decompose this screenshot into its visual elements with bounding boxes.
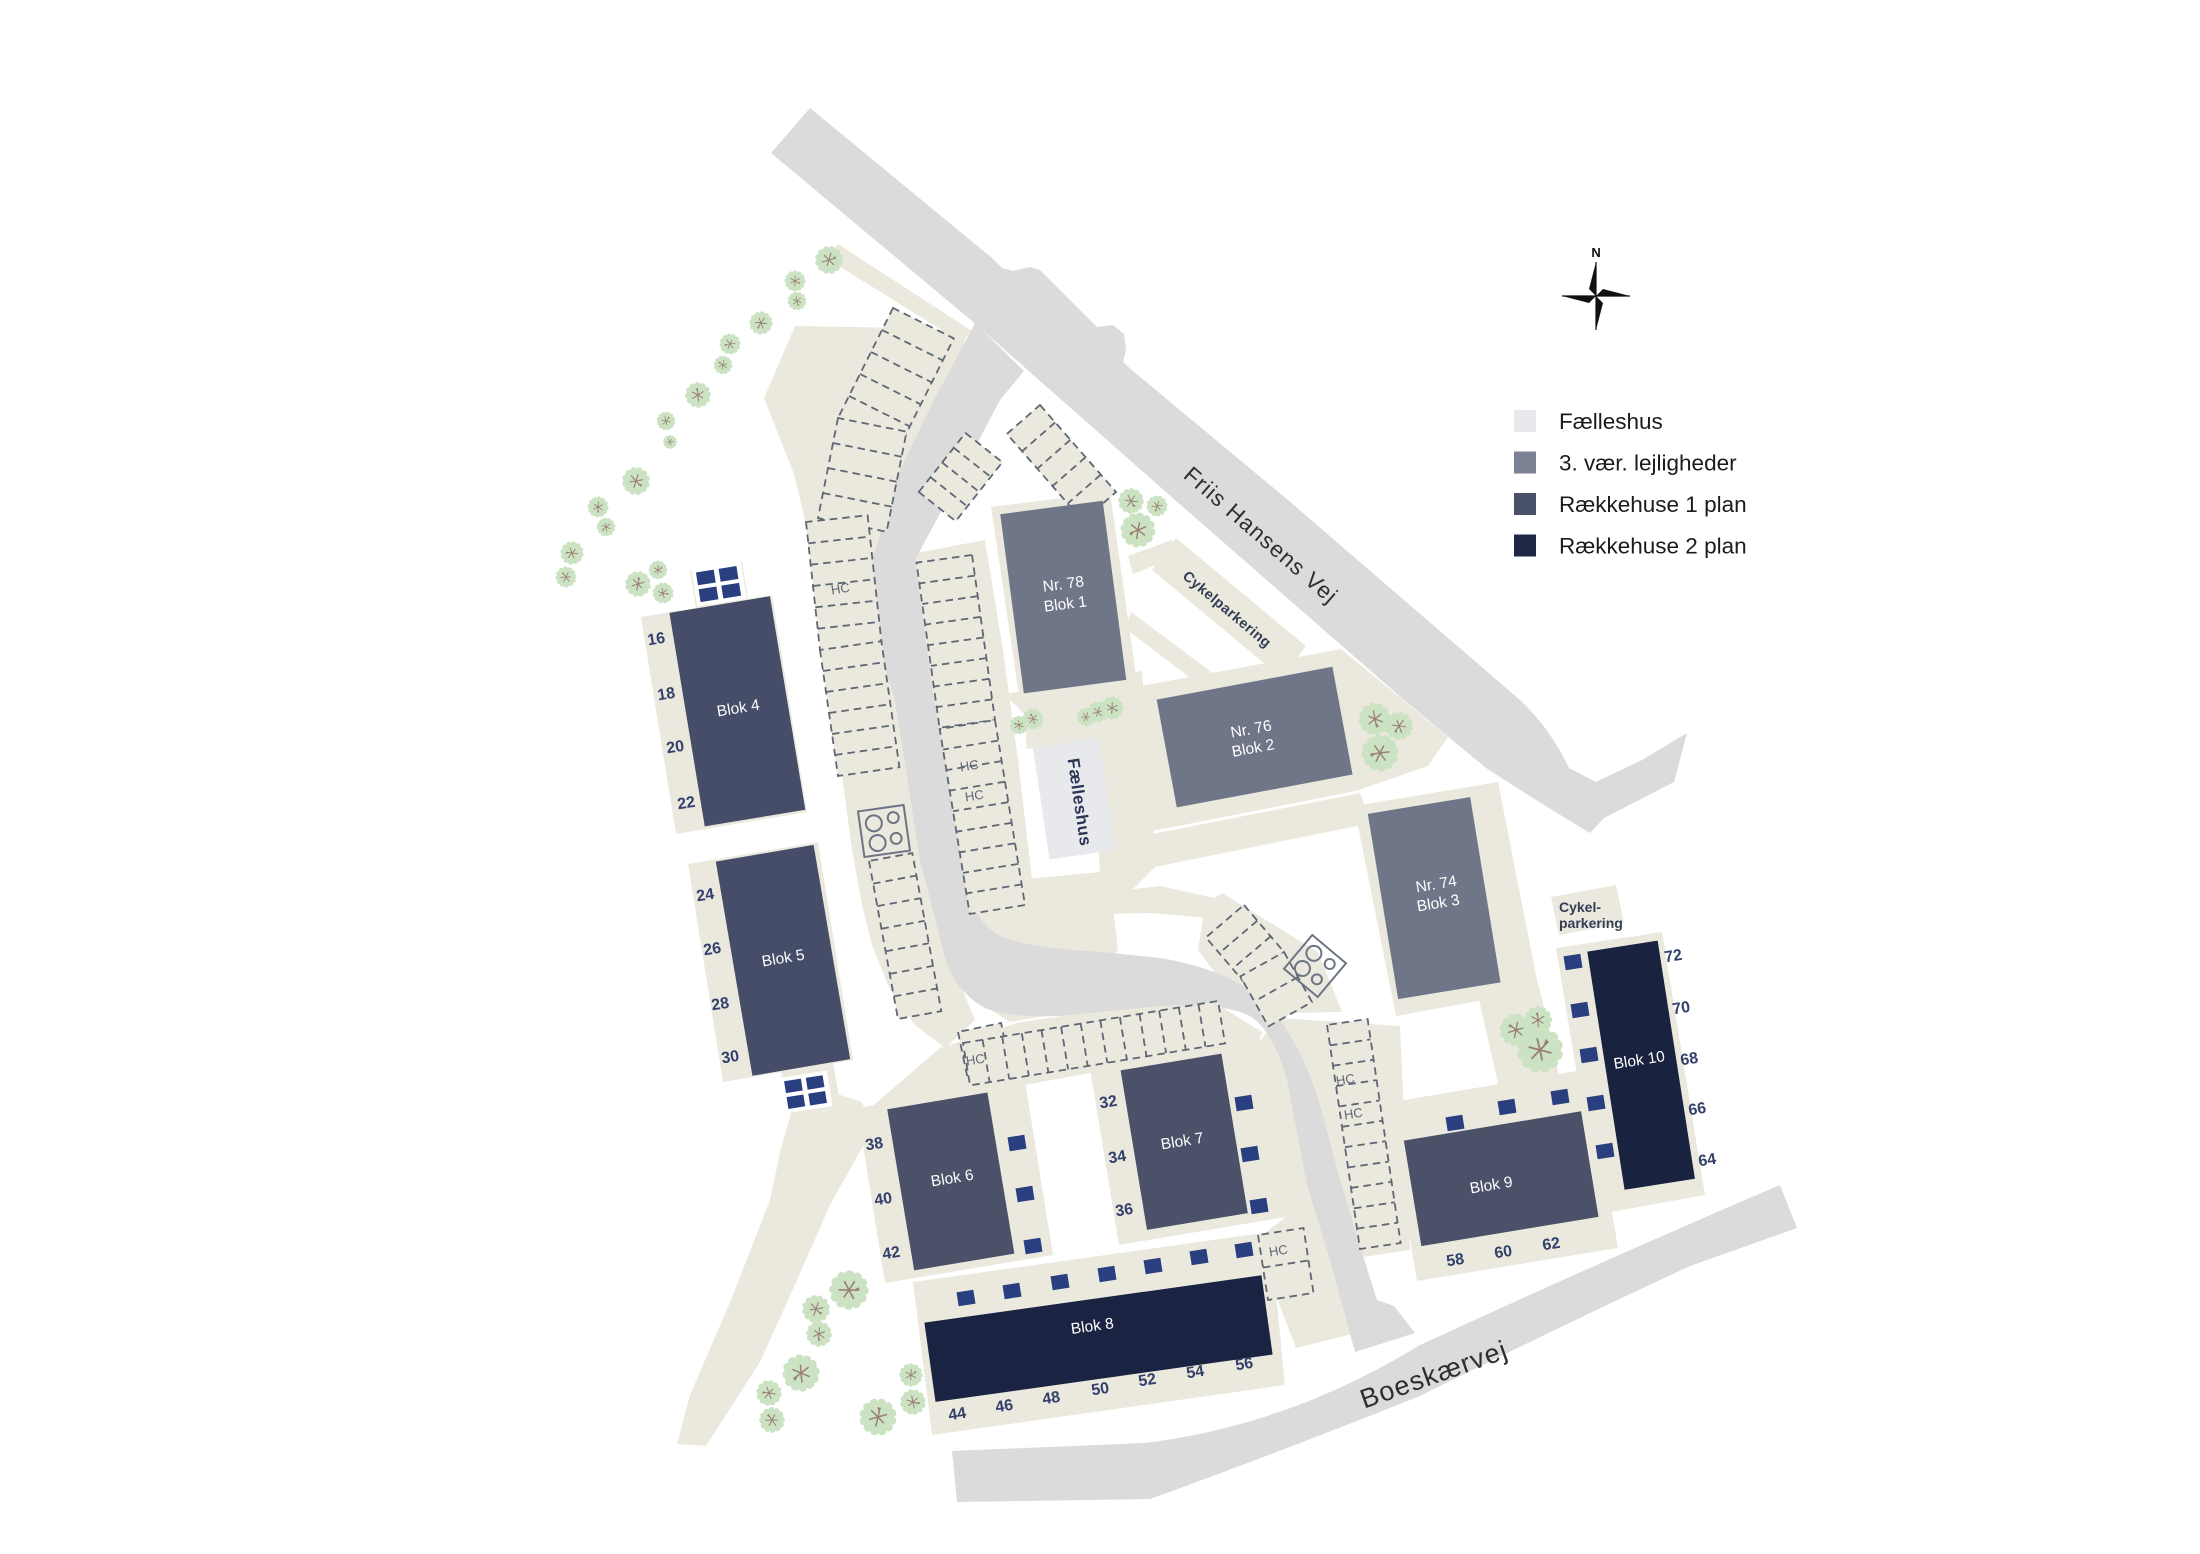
svg-text:68: 68	[1679, 1050, 1699, 1070]
svg-text:N: N	[1591, 245, 1600, 260]
svg-text:20: 20	[665, 738, 685, 758]
svg-text:18: 18	[656, 685, 676, 705]
svg-text:46: 46	[994, 1397, 1014, 1417]
svg-text:HC: HC	[965, 1051, 986, 1069]
svg-text:Fælleshus: Fælleshus	[1559, 409, 1663, 434]
svg-text:HC: HC	[830, 580, 851, 598]
svg-text:24: 24	[695, 886, 715, 906]
svg-text:70: 70	[1671, 999, 1691, 1019]
svg-text:parkering: parkering	[1559, 915, 1623, 931]
svg-text:26: 26	[702, 940, 722, 960]
svg-text:Rækkehuse 1 plan: Rækkehuse 1 plan	[1559, 492, 1747, 517]
svg-text:54: 54	[1185, 1363, 1205, 1383]
svg-text:32: 32	[1098, 1093, 1118, 1113]
svg-text:HC: HC	[1268, 1242, 1289, 1260]
svg-text:50: 50	[1090, 1380, 1110, 1400]
svg-text:58: 58	[1445, 1251, 1465, 1271]
svg-text:60: 60	[1493, 1243, 1513, 1263]
svg-text:44: 44	[947, 1405, 967, 1425]
svg-text:38: 38	[864, 1135, 884, 1155]
svg-text:Rækkehuse 2 plan: Rækkehuse 2 plan	[1559, 534, 1747, 559]
svg-text:HC: HC	[1343, 1105, 1364, 1123]
svg-text:40: 40	[873, 1190, 893, 1210]
svg-text:16: 16	[646, 630, 666, 650]
svg-text:HC: HC	[959, 757, 980, 775]
svg-text:62: 62	[1541, 1235, 1561, 1255]
svg-text:Cykel-: Cykel-	[1559, 899, 1601, 915]
svg-text:56: 56	[1234, 1355, 1254, 1375]
svg-text:28: 28	[710, 995, 730, 1015]
svg-text:22: 22	[676, 794, 696, 814]
svg-text:HC: HC	[964, 787, 985, 805]
svg-text:72: 72	[1663, 947, 1683, 967]
svg-text:34: 34	[1107, 1148, 1127, 1168]
svg-text:30: 30	[720, 1048, 740, 1068]
svg-text:52: 52	[1137, 1371, 1157, 1391]
svg-text:48: 48	[1041, 1389, 1061, 1409]
svg-text:64: 64	[1697, 1151, 1717, 1171]
svg-text:HC: HC	[1335, 1071, 1356, 1089]
svg-text:36: 36	[1114, 1201, 1134, 1221]
svg-text:3. vær. lejligheder: 3. vær. lejligheder	[1559, 451, 1737, 476]
svg-text:66: 66	[1687, 1100, 1707, 1120]
svg-text:42: 42	[881, 1244, 901, 1264]
